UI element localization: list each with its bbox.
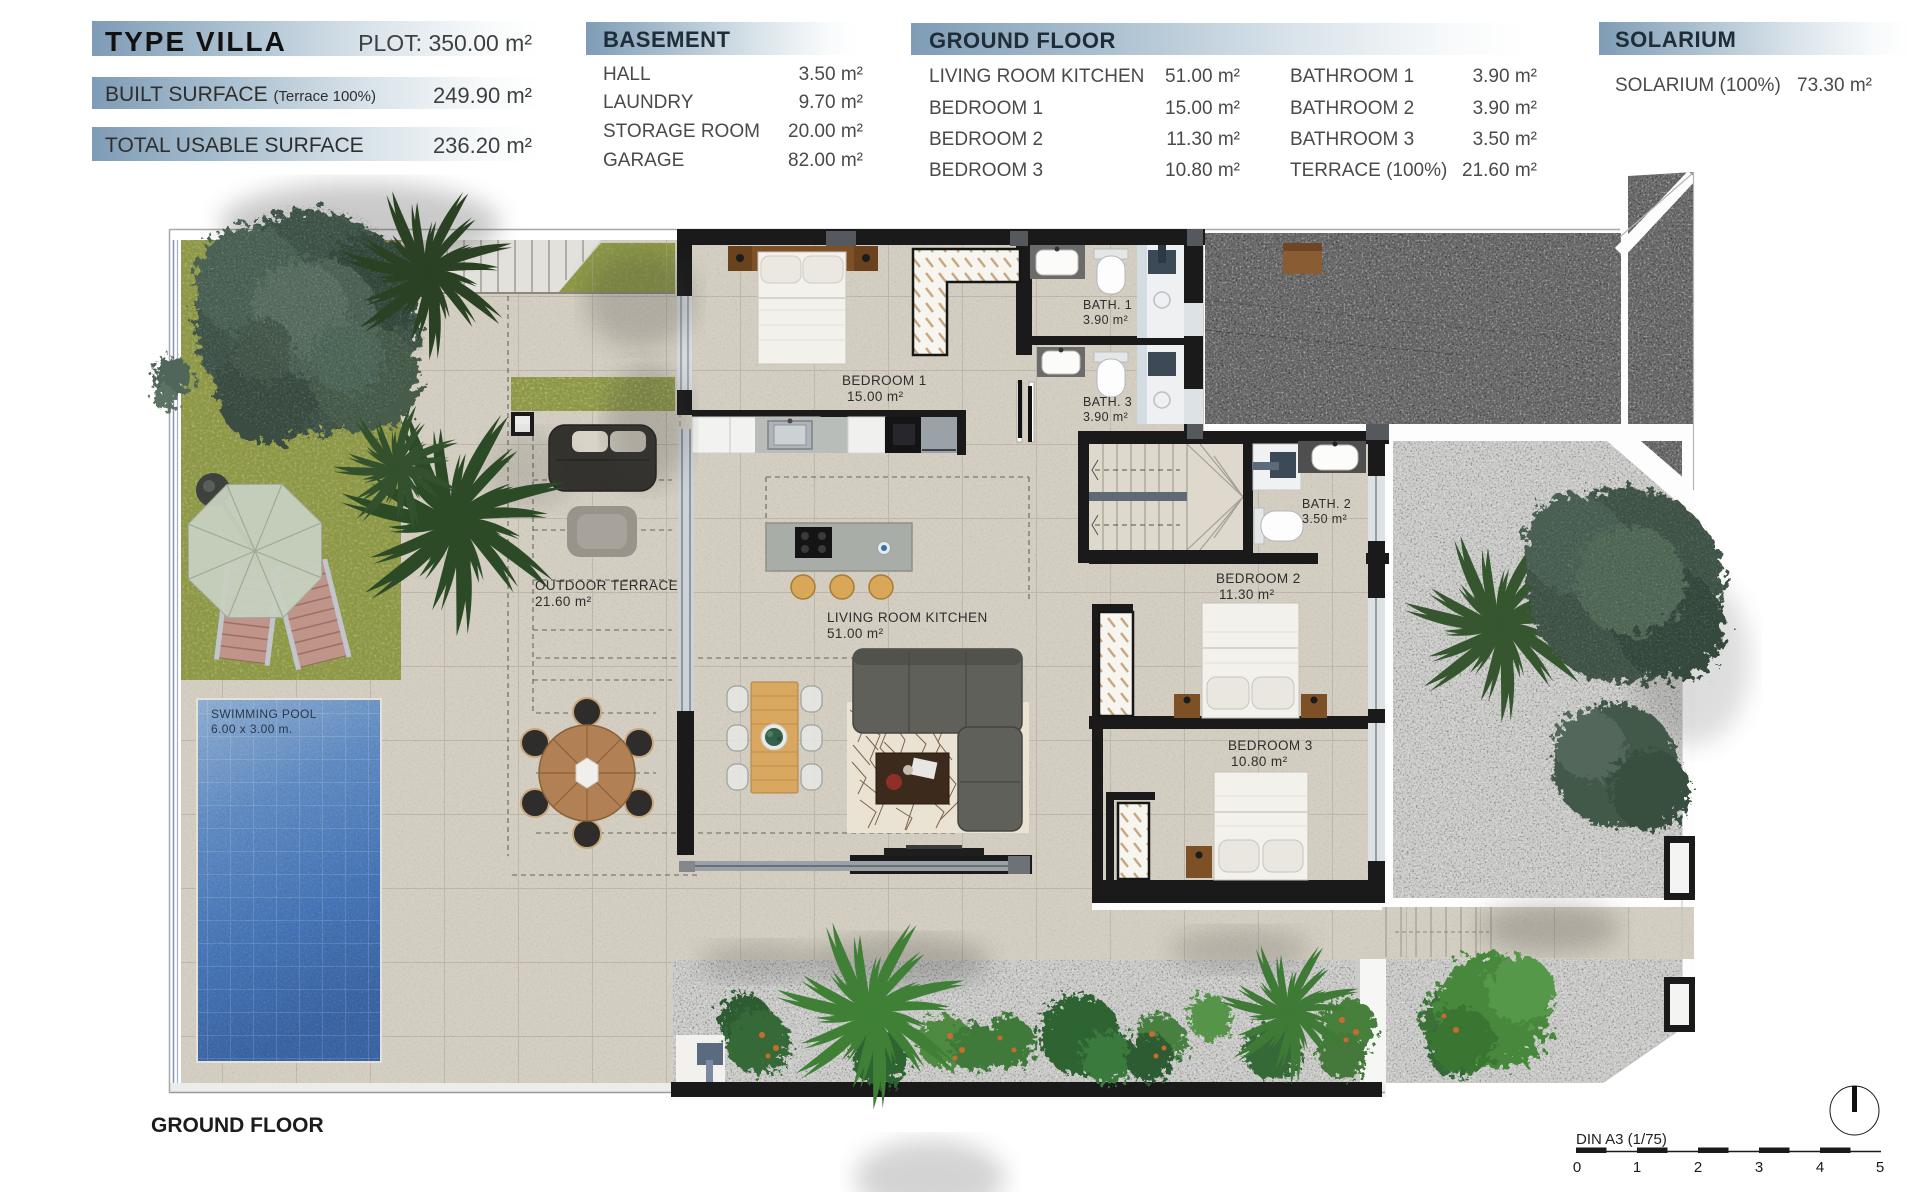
svg-text:2: 2 [1694, 1159, 1702, 1176]
svg-text:BEDROOM 3: BEDROOM 3 [1228, 738, 1313, 753]
svg-text:BATH. 3: BATH. 3 [1083, 395, 1132, 409]
svg-text:0: 0 [1573, 1159, 1581, 1176]
svg-text:BATH. 2: BATH. 2 [1302, 497, 1351, 511]
svg-text:3.90 m²: 3.90 m² [1083, 410, 1128, 424]
svg-text:21.60 m²: 21.60 m² [535, 594, 592, 609]
svg-text:SWIMMING POOL: SWIMMING POOL [211, 707, 317, 721]
svg-text:10.80 m²: 10.80 m² [1231, 754, 1288, 769]
svg-text:BEDROOM 1: BEDROOM 1 [842, 373, 927, 388]
svg-text:5: 5 [1876, 1159, 1884, 1176]
svg-text:4: 4 [1816, 1159, 1824, 1176]
svg-text:51.00 m²: 51.00 m² [827, 626, 884, 641]
svg-text:11.30 m²: 11.30 m² [1219, 587, 1275, 602]
svg-text:OUTDOOR TERRACE: OUTDOOR TERRACE [535, 578, 678, 593]
svg-text:1: 1 [1633, 1159, 1641, 1176]
svg-text:BATH. 1: BATH. 1 [1083, 298, 1132, 312]
svg-text:15.00 m²: 15.00 m² [847, 389, 904, 404]
svg-text:3.90 m²: 3.90 m² [1083, 313, 1128, 327]
svg-text:3: 3 [1755, 1159, 1763, 1176]
svg-text:LIVING ROOM KITCHEN: LIVING ROOM KITCHEN [827, 610, 988, 625]
svg-text:6.00 x 3.00 m.: 6.00 x 3.00 m. [211, 722, 293, 736]
svg-text:3.50 m²: 3.50 m² [1302, 512, 1347, 526]
svg-text:BEDROOM 2: BEDROOM 2 [1216, 571, 1301, 586]
